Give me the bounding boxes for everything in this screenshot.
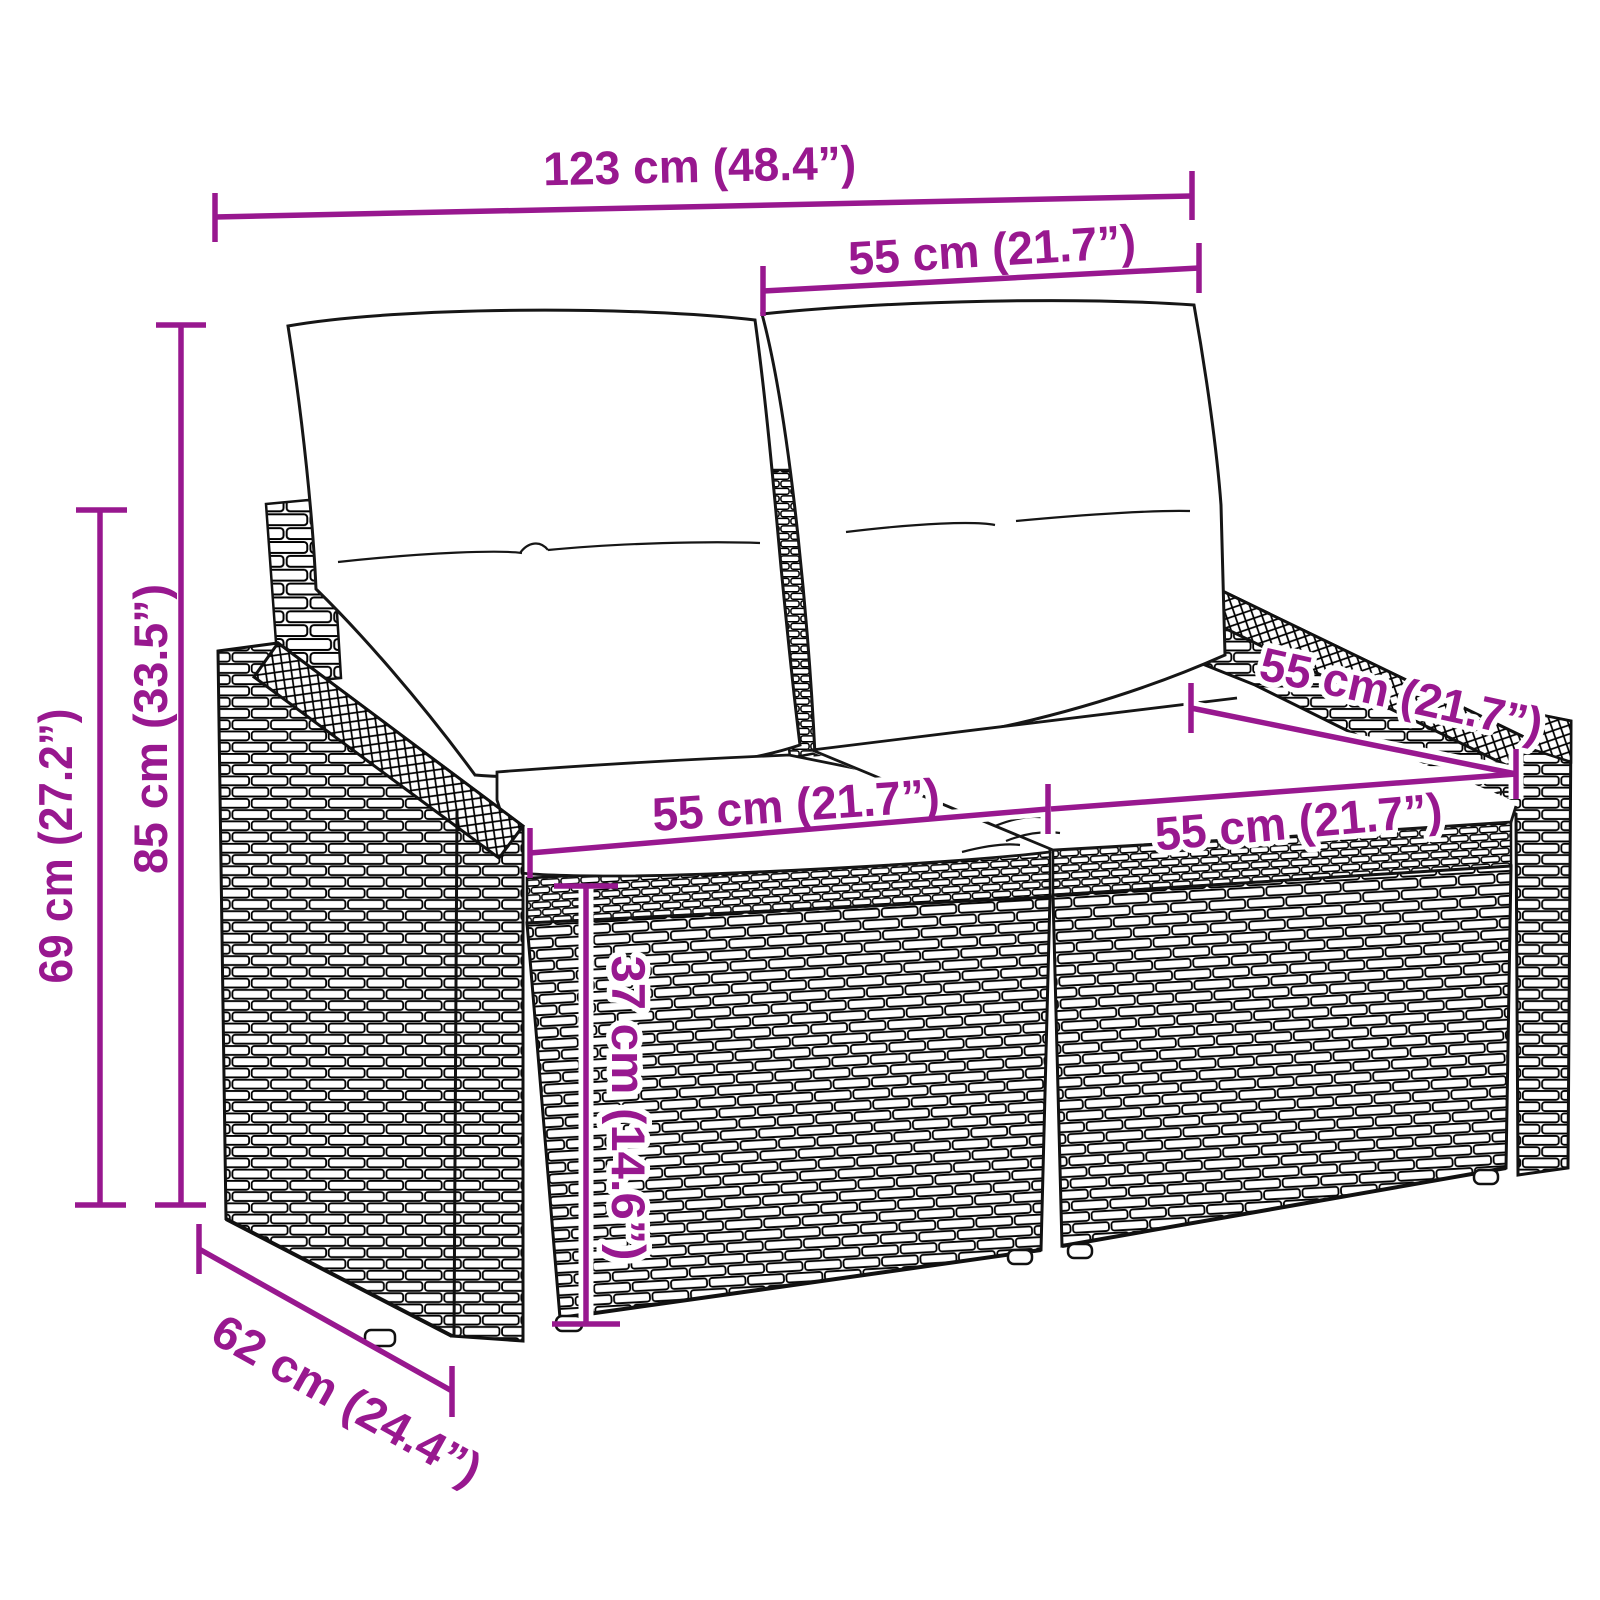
svg-text:37 cm (14.6”): 37 cm (14.6”) (602, 956, 655, 1261)
svg-text:85 cm (33.5”): 85 cm (33.5”) (124, 584, 177, 874)
svg-text:123 cm (48.4”): 123 cm (48.4”) (543, 136, 857, 196)
svg-text:69 cm (27.2”): 69 cm (27.2”) (29, 709, 82, 984)
